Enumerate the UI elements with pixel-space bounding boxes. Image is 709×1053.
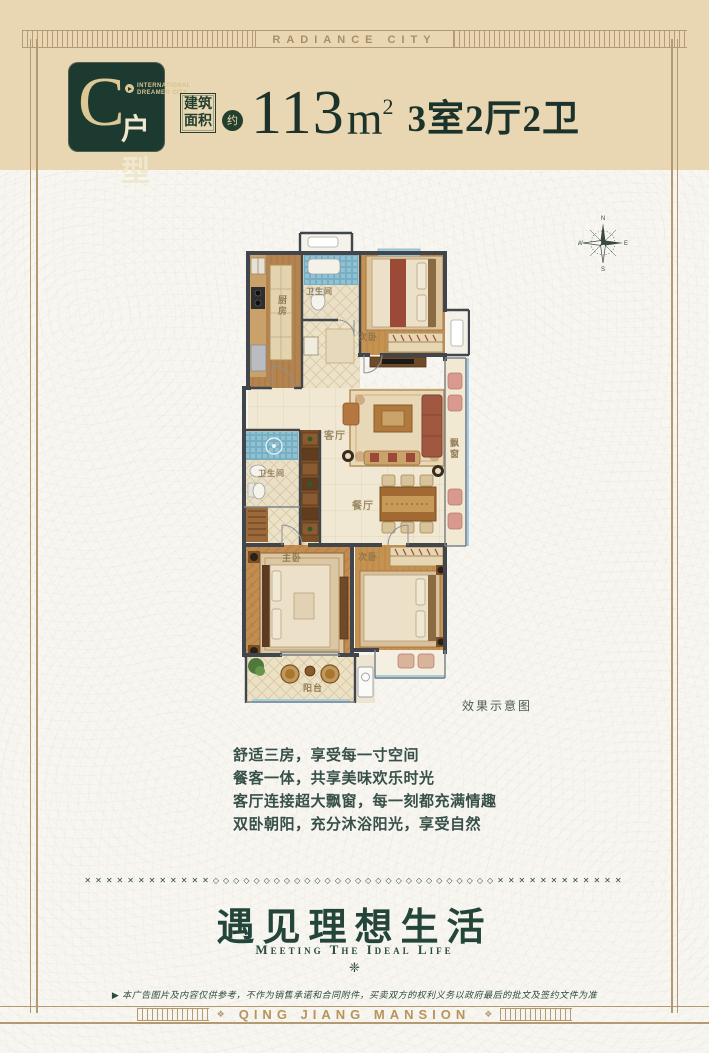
header-band: RADIANCE CITY C INTERNATIONAL DREAMER CI… — [0, 0, 709, 170]
feature-list: 舒适三房，享受每一寸空间 餐客一体，共享美味欢乐时光 客厅连接超大飘窗，每一刻都… — [233, 744, 497, 836]
compass-n: N — [601, 216, 605, 222]
frame-line-right-inner — [671, 39, 673, 1013]
fret-pattern-bottom-right — [500, 1008, 572, 1021]
frame-line-right-outer — [677, 39, 678, 1013]
logo-letter: C — [78, 58, 125, 148]
top-banner-title: RADIANCE CITY — [255, 30, 453, 48]
area-label-box: 建筑 面积 — [180, 93, 216, 133]
compass-w: W — [578, 241, 583, 247]
room-label-bay-window: 飘窗 — [448, 438, 461, 460]
room-label-bedroom-bottom: 次卧 — [358, 550, 378, 563]
compass-e: E — [624, 241, 628, 247]
brand-logo: C INTERNATIONAL DREAMER CITY 户型 — [68, 62, 165, 152]
logo-type-label: 户型 — [121, 106, 165, 190]
disclaimer-text: ▶ 本广告图片及内容仅供参考，不作为销售承诺和合同附件，买卖双方的权利义务以政府… — [0, 988, 709, 1001]
room-label-master: 主卧 — [282, 551, 302, 564]
fret-pattern-left — [22, 30, 255, 48]
feature-line-1: 舒适三房，享受每一寸空间 — [233, 744, 497, 767]
feature-line-3: 客厅连接超大飘窗，每一刻都充满情趣 — [233, 790, 497, 813]
feature-line-4: 双卧朝阳，充分沐浴阳光，享受自然 — [233, 813, 497, 836]
area-exponent: 2 — [382, 94, 393, 119]
room-label-bath-mid: 卫生间 — [258, 468, 285, 479]
room-label-kitchen: 厨房 — [276, 295, 289, 317]
poster-page: RADIANCE CITY C INTERNATIONAL DREAMER CI… — [0, 0, 709, 1053]
compass-s: S — [601, 267, 605, 272]
bottom-decorative-border: ❖ QING JIANG MANSION ❖ — [0, 1006, 709, 1024]
fret-pattern-bottom-left — [137, 1008, 209, 1021]
area-box-line2: 面积 — [184, 113, 212, 130]
frame-line-left-inner — [36, 39, 38, 1013]
feature-line-2: 餐客一体，共享美味欢乐时光 — [233, 767, 497, 790]
headline: 建筑 面积 约 113 m2 3室2厅2卫 — [180, 78, 580, 148]
logo-play-icon — [125, 84, 134, 93]
flower-ornament-icon: ❈ — [0, 960, 709, 976]
floorplan-caption: 效果示意图 — [462, 697, 532, 714]
diamond-ornament-left-icon: ❖ — [217, 1009, 225, 1020]
room-label-dining: 餐厅 — [352, 497, 374, 512]
project-name-label: QING JIANG MANSION — [233, 1007, 477, 1022]
diamond-ornament-right-icon: ❖ — [484, 1009, 492, 1020]
layout-spec: 3室2厅2卫 — [407, 84, 580, 142]
area-box-line1: 建筑 — [184, 96, 212, 113]
room-label-bath-top: 卫生间 — [306, 286, 333, 297]
area-value: 113 — [251, 82, 345, 144]
ornamental-divider: ✕✕✕✕✕✕✕✕✕✕✕✕◇◇◇◇◇◇◇◇◇◇◇◇◇◇◇◇◇◇◇◇◇◇◇◇◇◇◇◇… — [40, 876, 670, 885]
area-unit: m2 — [347, 84, 394, 142]
room-label-bedroom-top: 次卧 — [358, 330, 378, 343]
room-label-living: 客厅 — [324, 427, 346, 442]
frame-line-left-outer — [30, 39, 31, 1013]
compass-icon: N E S W — [578, 214, 628, 272]
fret-pattern-right — [454, 30, 687, 48]
slogan-subtitle: Meeting The Ideal Life — [0, 942, 709, 958]
approx-badge: 约 — [222, 110, 243, 131]
top-decorative-border: RADIANCE CITY — [22, 30, 687, 48]
room-label-balcony: 阳台 — [303, 681, 323, 694]
